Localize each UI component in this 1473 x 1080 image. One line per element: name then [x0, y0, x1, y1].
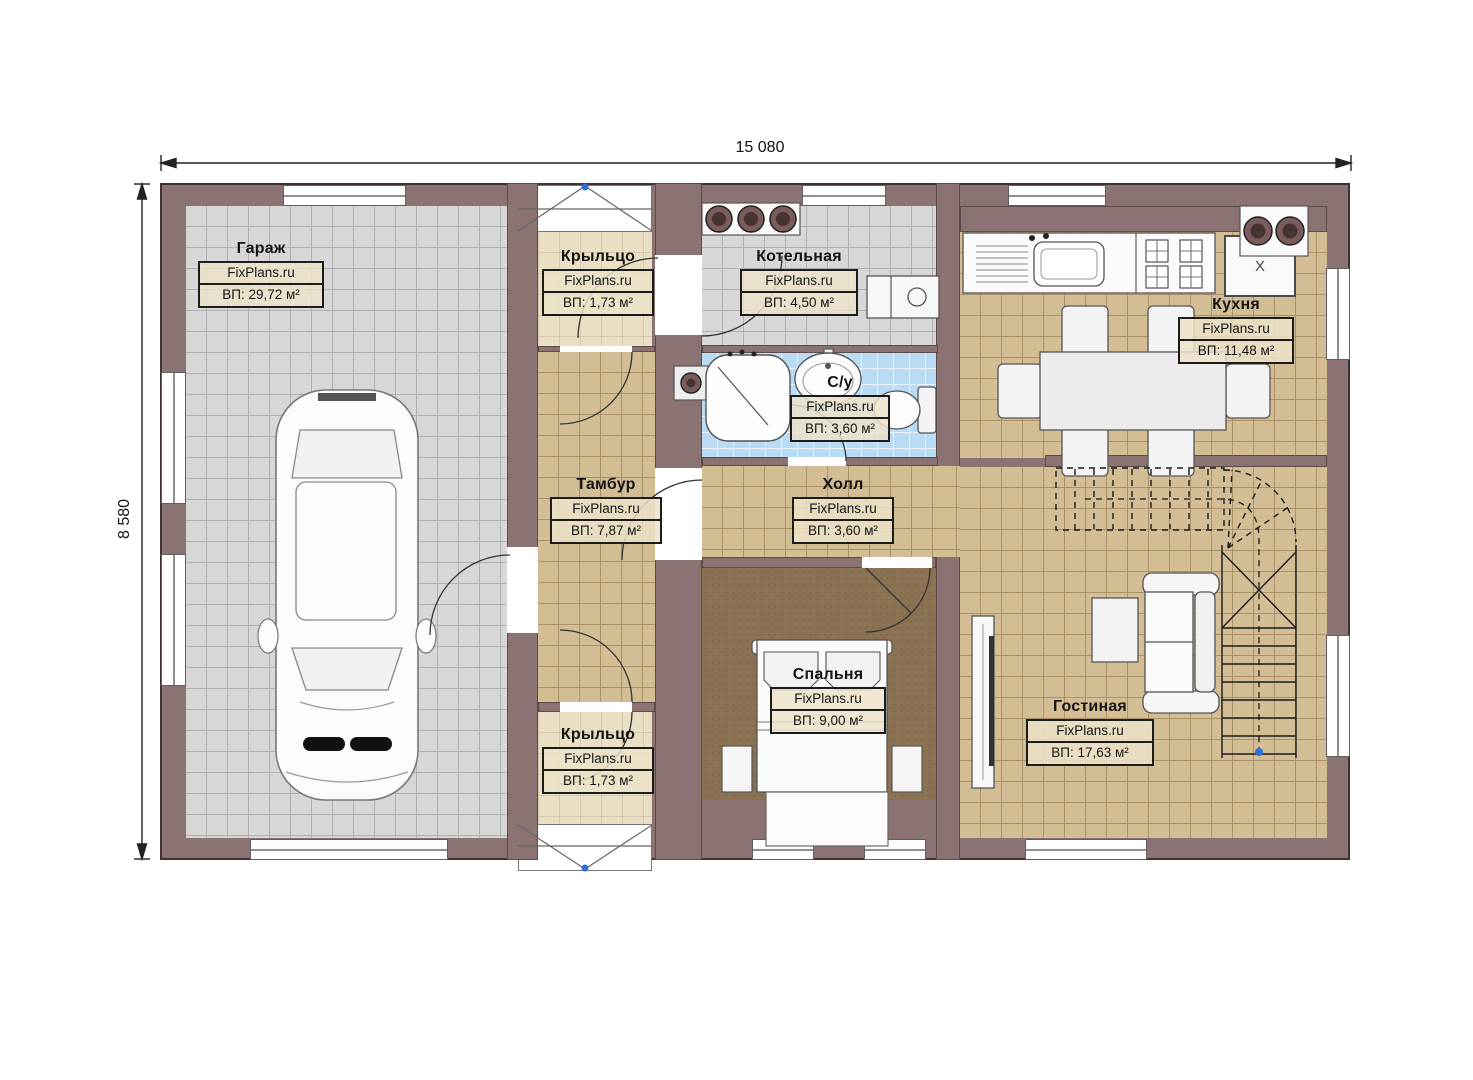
room-label-bedroom: Спальня FixPlans.ru ВП: 9,00 м² [770, 666, 886, 734]
room-label-living: Гостиная FixPlans.ru ВП: 17,63 м² [1026, 698, 1154, 766]
dimension-height-label: 8 580 [116, 499, 134, 539]
window-boiler-top [802, 185, 886, 206]
garage-doorway [507, 547, 538, 633]
room-area: ВП: 3,60 м² [792, 419, 888, 440]
porch-bottom-doorway [560, 702, 632, 712]
room-name: С/у [790, 374, 890, 392]
window-kitchen-right [1326, 268, 1350, 360]
room-area: ВП: 11,48 м² [1180, 341, 1292, 362]
window-garage-left-2 [161, 554, 186, 686]
fridge-label: X [1255, 258, 1265, 275]
watermark: FixPlans.ru [1180, 319, 1292, 342]
room-name: Холл [792, 476, 894, 494]
window-living-bottom [1025, 839, 1147, 860]
hall-living-opening [936, 466, 960, 557]
porch-top-doorway [560, 346, 632, 352]
room-name: Крыльцо [542, 248, 654, 266]
room-name: Крыльцо [542, 726, 654, 744]
window-garage-top [283, 185, 406, 206]
wall-boiler-bath [702, 345, 938, 353]
fridge: X [1224, 235, 1296, 297]
room-area: ВП: 1,73 м² [544, 771, 652, 792]
room-area: ВП: 9,00 м² [772, 711, 884, 732]
watermark: FixPlans.ru [1028, 721, 1152, 744]
vestibule-hall-doorway [655, 468, 702, 560]
wall-kitchen-living [1045, 455, 1327, 467]
floor-plan-canvas: X [0, 0, 1473, 1080]
porch-bottom-steps [518, 824, 652, 871]
watermark: FixPlans.ru [772, 689, 884, 712]
room-label-hall: Холл FixPlans.ru ВП: 3,60 м² [792, 476, 894, 544]
window-garage-left-1 [161, 372, 186, 504]
porch-top-steps [518, 185, 652, 232]
bedroom-doorway [862, 557, 932, 568]
watermark: FixPlans.ru [544, 749, 652, 772]
wall-garage-right [507, 183, 538, 860]
room-area: ВП: 17,63 м² [1028, 743, 1152, 764]
room-label-bathroom: С/у FixPlans.ru ВП: 3,60 м² [790, 374, 890, 442]
room-area: ВП: 3,60 м² [794, 521, 892, 542]
watermark: FixPlans.ru [552, 499, 660, 522]
room-label-boiler: Котельная FixPlans.ru ВП: 4,50 м² [740, 248, 858, 316]
room-area: ВП: 4,50 м² [742, 293, 856, 314]
room-name: Тамбур [550, 476, 662, 494]
room-label-porch-bottom: Крыльцо FixPlans.ru ВП: 1,73 м² [542, 726, 654, 794]
living-floor [960, 467, 1327, 838]
room-label-kitchen: Кухня FixPlans.ru ВП: 11,48 м² [1178, 296, 1294, 364]
wall-kitchen-top [960, 206, 1327, 232]
room-label-garage: Гараж FixPlans.ru ВП: 29,72 м² [198, 240, 324, 308]
room-name: Котельная [740, 248, 858, 266]
room-name: Гостиная [1026, 698, 1154, 716]
window-bedroom-bottom-2 [864, 839, 926, 860]
room-name: Спальня [770, 666, 886, 684]
window-bedroom-bottom-1 [752, 839, 814, 860]
entry-doorway [655, 255, 702, 335]
dimension-width-label: 15 080 [700, 139, 820, 157]
room-label-vestibule: Тамбур FixPlans.ru ВП: 7,87 м² [550, 476, 662, 544]
watermark: FixPlans.ru [792, 397, 888, 420]
window-living-right [1326, 635, 1350, 757]
room-area: ВП: 1,73 м² [544, 293, 652, 314]
watermark: FixPlans.ru [794, 499, 892, 522]
room-label-porch-top: Крыльцо FixPlans.ru ВП: 1,73 м² [542, 248, 654, 316]
watermark: FixPlans.ru [544, 271, 652, 294]
room-name: Кухня [1178, 296, 1294, 314]
room-area: ВП: 7,87 м² [552, 521, 660, 542]
bathroom-doorway [788, 457, 846, 466]
room-area: ВП: 29,72 м² [200, 285, 322, 306]
watermark: FixPlans.ru [200, 263, 322, 286]
window-kitchen-top [1008, 185, 1106, 206]
watermark: FixPlans.ru [742, 271, 856, 294]
room-name: Гараж [198, 240, 324, 258]
garage-gate [250, 839, 448, 860]
